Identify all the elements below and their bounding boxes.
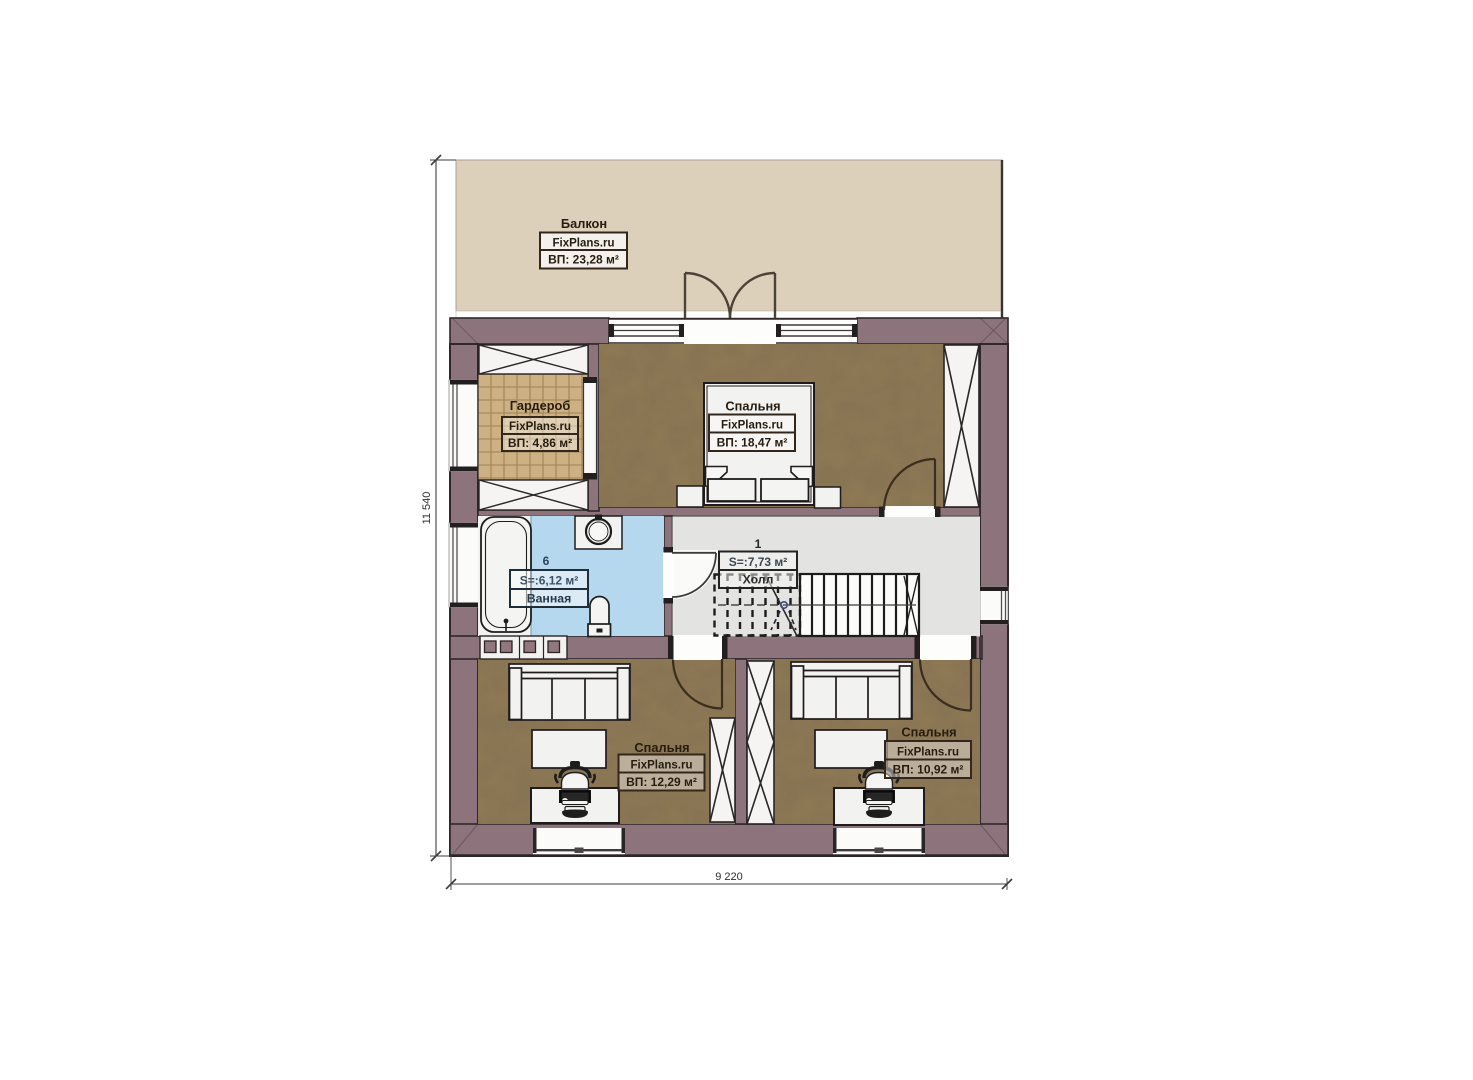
svg-text:1: 1 [755,537,762,551]
svg-text:Холл: Холл [743,573,774,587]
svg-text:11 540: 11 540 [421,492,433,525]
svg-text:FixPlans.ru: FixPlans.ru [553,238,615,250]
svg-text:FixPlans.ru: FixPlans.ru [509,421,571,433]
svg-text:FixPlans.ru: FixPlans.ru [721,420,783,432]
svg-text:S=:6,12 м²: S=:6,12 м² [520,574,579,588]
svg-text:ВП: 12,29 м²: ВП: 12,29 м² [626,775,697,789]
svg-text:9 220: 9 220 [715,871,743,883]
svg-text:ВП: 23,28 м²: ВП: 23,28 м² [548,253,619,267]
svg-text:S=:7,73 м²: S=:7,73 м² [729,555,788,569]
svg-text:ВП: 4,86 м²: ВП: 4,86 м² [508,436,572,450]
svg-text:Балкон: Балкон [561,216,607,231]
svg-text:FixPlans.ru: FixPlans.ru [897,747,959,759]
svg-text:Спальня: Спальня [901,725,956,740]
svg-text:Спальня: Спальня [634,740,689,755]
svg-text:Спальня: Спальня [725,399,780,414]
svg-text:ВП: 18,47 м²: ВП: 18,47 м² [717,436,788,450]
svg-text:Гардероб: Гардероб [510,398,571,413]
svg-text:6: 6 [543,554,550,568]
svg-text:FixPlans.ru: FixPlans.ru [631,760,693,772]
svg-text:Ванная: Ванная [527,592,572,606]
svg-text:ВП: 10,92 м²: ВП: 10,92 м² [893,763,964,777]
